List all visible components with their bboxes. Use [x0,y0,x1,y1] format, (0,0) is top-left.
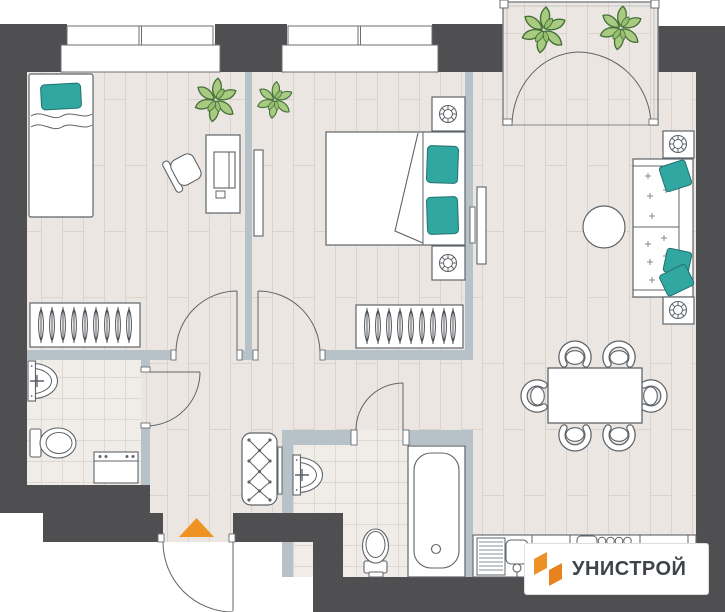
dining-chair [562,344,588,364]
wall-bath2-east [465,430,473,577]
side-table-bottom [663,297,694,324]
wall-bath2-north-left [282,430,351,445]
dining-chair [644,383,664,409]
wall-east [696,26,725,577]
bench-rail [278,447,282,494]
wardrobe-2 [356,305,463,348]
sofa [633,159,695,297]
dining-table [548,368,642,423]
window-bedroom-1 [61,26,220,72]
nightstand-bottom [432,246,465,280]
wall-south-step [313,542,343,612]
unistroy-logo-mark [534,549,564,589]
decor-dish-icon [670,136,687,153]
faucet-knob [513,564,521,572]
tv-bracket [470,207,475,243]
round-coffee-table [583,206,625,248]
dish-drainer [477,538,505,575]
wardrobe-1 [30,303,140,347]
door-jamb [503,119,512,125]
wall-bedroom2-south [325,350,473,360]
wall-bedroom1-south [27,350,171,360]
side-table-top [663,131,694,158]
door-jamb [649,119,658,125]
washing-machine [94,452,138,483]
wall-bath2-west [282,445,293,577]
wall-between-bedrooms [245,72,252,360]
drain [432,545,441,554]
unistroy-logo: УНИСТРОЙ [524,543,709,595]
wall-south-hall-right [233,513,343,542]
wall-stub-doors [242,350,253,360]
wall-bath2-north-right [409,430,473,445]
wall-south-hall-left [43,513,163,542]
toilet [363,529,389,577]
mouse-pad [216,191,225,198]
dining-chair [524,383,544,409]
pillow-teal [40,83,81,110]
decor-dish-icon [670,302,687,319]
dining-chair [562,428,588,448]
wall-north-d [658,26,696,72]
tufted-bench [242,433,282,505]
dining-chair [606,344,632,364]
wall-north-b [215,24,287,72]
door-entrance [163,542,233,612]
wall-tv-bedroom2 [254,150,263,236]
outside-patch [0,513,43,542]
unistroy-logo-text: УНИСТРОЙ [572,558,686,581]
decor-dish-icon [440,255,457,272]
wall-bath1-east-lower [141,428,150,485]
glazing-post [651,0,659,8]
dining-chair [606,428,632,448]
window-bedroom-2 [282,26,438,72]
glazing-post [500,0,508,8]
wall-west [0,24,27,513]
pillow-teal [426,196,458,234]
wall-bath1-east-upper [141,360,150,367]
nightstand-top [432,97,465,131]
wall-south-bath1 [0,485,150,513]
toilet [30,428,76,458]
floor-plan-drawing [0,0,725,612]
wall-north-c [432,24,503,72]
wall-tv-living [477,187,486,264]
bathtub [408,446,465,577]
pillow-teal [426,145,458,183]
decor-dish-icon [440,106,457,123]
monitor [214,152,235,188]
floor-plan: УНИСТРОЙ [0,0,725,612]
